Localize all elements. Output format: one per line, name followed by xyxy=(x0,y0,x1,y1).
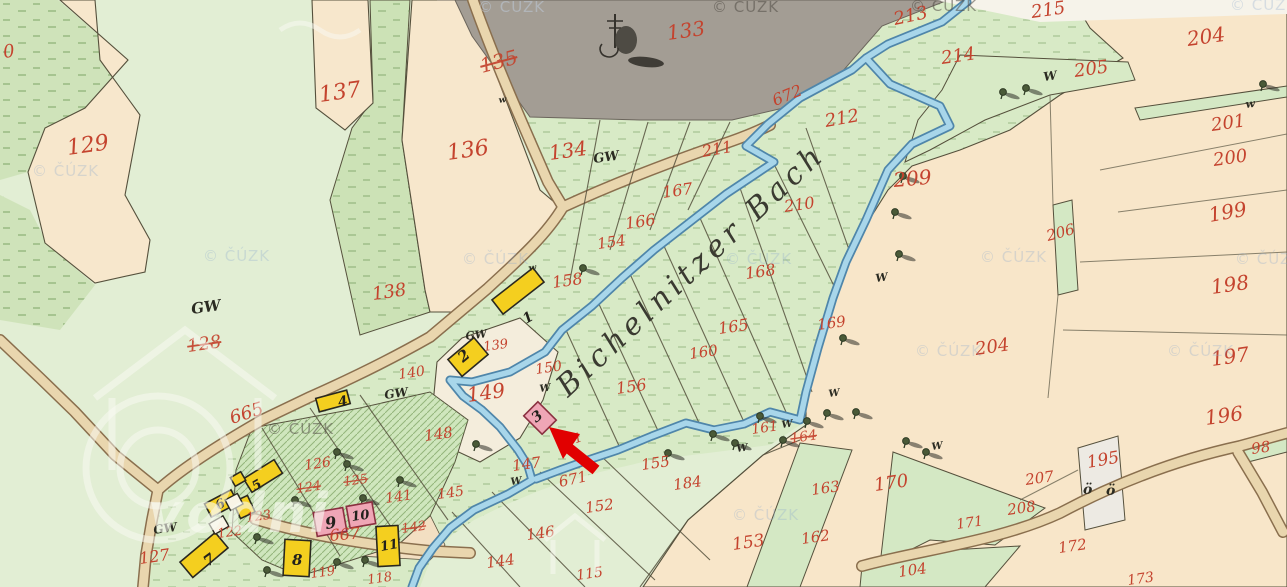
cuzk-watermark: © ČÚZK xyxy=(32,161,99,180)
ground-type-label: ö xyxy=(1106,483,1115,499)
ground-type-label: ö xyxy=(1083,482,1092,498)
parcel-label: 98 xyxy=(1250,437,1271,457)
cuzk-watermark: © ČÚZK xyxy=(203,246,270,265)
cuzk-watermark: © ČÚZK xyxy=(910,0,977,15)
cuzk-watermark: © ČÚZK xyxy=(980,247,1047,266)
map-canvas[interactable]: Bichelnitzer Bach 0129137135136134133213… xyxy=(0,0,1287,587)
cuzk-watermark: © ČÚZK xyxy=(1230,0,1287,14)
house-number: 11 xyxy=(379,537,399,555)
cuzk-watermark: © ČÚZK xyxy=(267,419,334,438)
cadastral-map: Bichelnitzer Bach 0129137135136134133213… xyxy=(0,0,1287,587)
parcel-label: 209 xyxy=(891,165,932,192)
cuzk-watermark: © ČÚZK xyxy=(462,249,529,268)
cuzk-watermark: © ČÚZK xyxy=(1167,341,1234,360)
cuzk-watermark: © ČÚZK xyxy=(732,505,799,524)
vodni-watermark: vodni xyxy=(148,482,331,545)
parcel-label: 173 xyxy=(1126,569,1155,587)
cuzk-watermark: © ČÚZK xyxy=(712,0,779,16)
field-137 xyxy=(312,0,373,130)
cuzk-watermark: © ČÚZK xyxy=(725,249,792,268)
parcel-label: 118 xyxy=(366,570,393,587)
cuzk-watermark: © ČÚZK xyxy=(915,341,982,360)
house-number: 8 xyxy=(292,551,303,569)
house-number: 10 xyxy=(350,508,370,525)
cuzk-watermark: © ČÚZK xyxy=(478,0,545,16)
cuzk-watermark: © ČÚZK xyxy=(1235,249,1287,268)
